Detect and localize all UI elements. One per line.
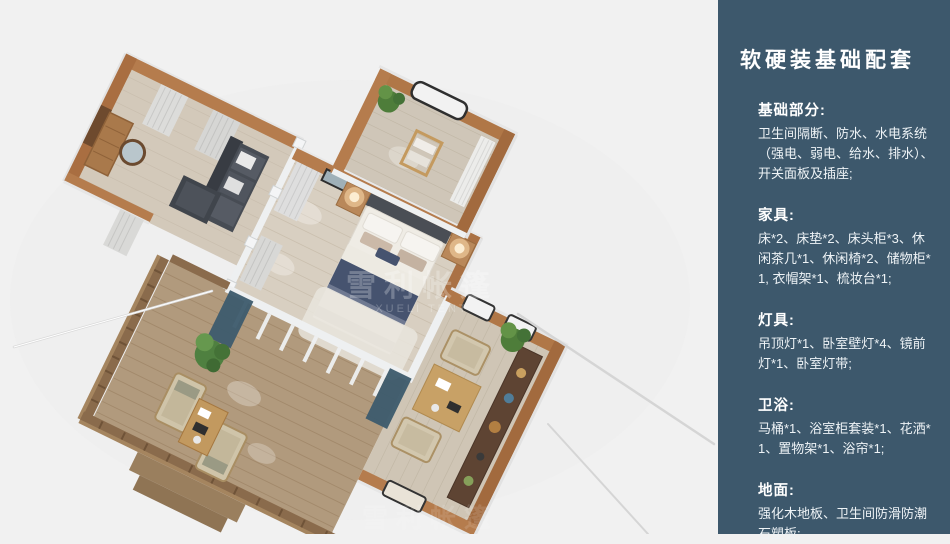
section-lighting: 灯具: 吊顶灯*1、卧室壁灯*4、镜前灯*1、卧室灯带;	[758, 309, 937, 374]
svg-text:XUELI TENT: XUELI TENT	[375, 303, 468, 315]
section-heading: 灯具:	[758, 309, 937, 330]
svg-text:雪利帐篷: 雪利帐篷	[362, 503, 498, 533]
section-heading: 地面:	[758, 479, 937, 500]
section-heading: 基础部分:	[758, 99, 937, 120]
section-heading: 家具:	[758, 204, 937, 225]
section-furniture: 家具: 床*2、床垫*2、床头柜*3、休闲茶几*1、休闲椅*2、储物柜*1, 衣…	[758, 204, 937, 289]
section-body: 卫生间隔断、防水、水电系统（强电、弱电、给水、排水）、开关面板及插座;	[758, 124, 937, 184]
floorplan-svg: 雪利帐篷 XUELI TENT 雪利帐篷	[0, 0, 718, 534]
section-body: 马桶*1、浴室柜套装*1、花洒*1、置物架*1、浴帘*1;	[758, 419, 937, 459]
section-heading: 卫浴:	[758, 394, 937, 415]
info-panel: 软硬装基础配套 基础部分: 卫生间隔断、防水、水电系统（强电、弱电、给水、排水）…	[718, 0, 950, 534]
section-body: 强化木地板、卫生间防滑防潮石塑板;	[758, 504, 937, 544]
section-body: 吊顶灯*1、卧室壁灯*4、镜前灯*1、卧室灯带;	[758, 334, 937, 374]
section-bathroom: 卫浴: 马桶*1、浴室柜套装*1、花洒*1、置物架*1、浴帘*1;	[758, 394, 937, 459]
floorplan-render: 雪利帐篷 XUELI TENT 雪利帐篷	[0, 0, 718, 534]
section-basics: 基础部分: 卫生间隔断、防水、水电系统（强电、弱电、给水、排水）、开关面板及插座…	[758, 99, 937, 184]
svg-text:雪利帐篷: 雪利帐篷	[346, 270, 498, 303]
section-floor: 地面: 强化木地板、卫生间防滑防潮石塑板;	[758, 479, 937, 544]
panel-title: 软硬装基础配套	[740, 44, 937, 74]
section-body: 床*2、床垫*2、床头柜*3、休闲茶几*1、休闲椅*2、储物柜*1, 衣帽架*1…	[758, 229, 937, 289]
